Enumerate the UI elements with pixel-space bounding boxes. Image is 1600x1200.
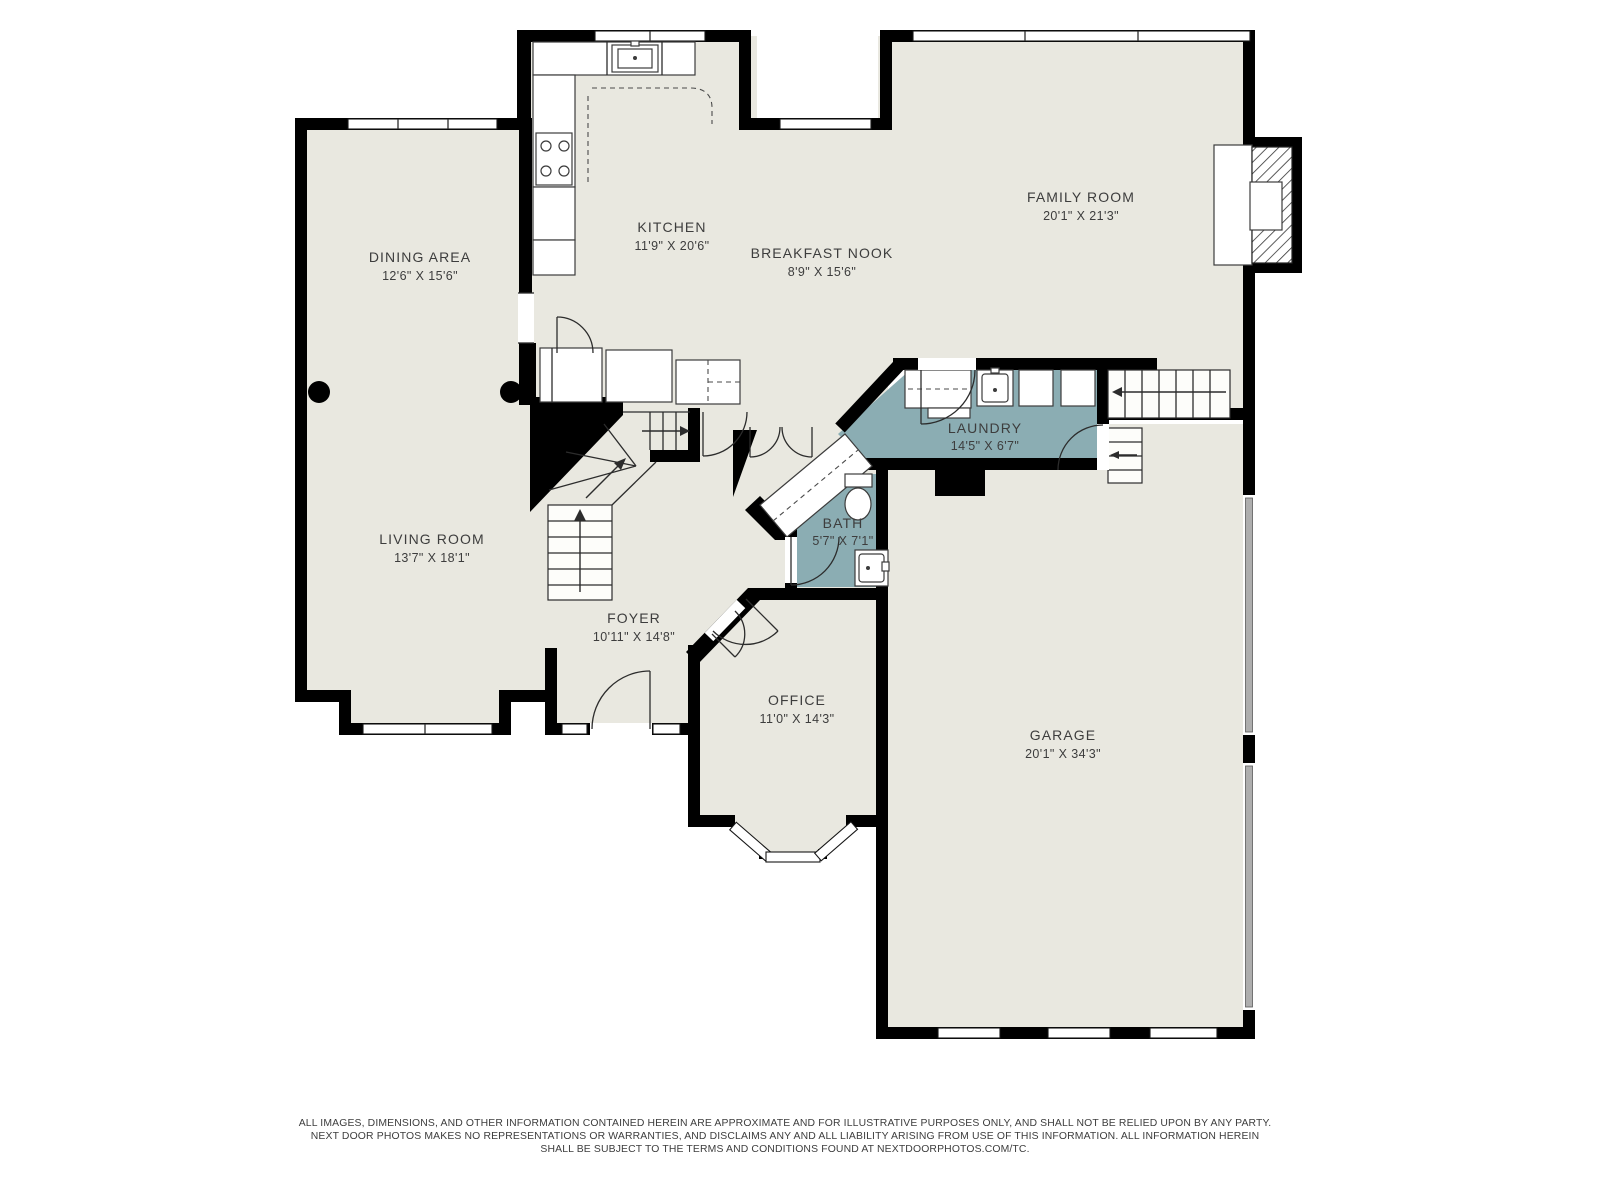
wall-segment xyxy=(739,30,751,130)
window-office-bay-center xyxy=(766,852,820,862)
window-dining xyxy=(348,119,497,129)
bath-faucet-icon xyxy=(882,562,889,571)
room-dims-family: 20'1" X 21'3" xyxy=(1043,209,1119,223)
fireplace-firebox xyxy=(1250,182,1282,230)
wall-segment xyxy=(517,30,531,130)
wall-segment xyxy=(1243,30,1255,147)
room-label-family: FAMILY ROOM xyxy=(1027,189,1135,205)
garage-door-1 xyxy=(1246,498,1253,732)
laundry-drain-icon xyxy=(993,388,997,392)
garage-door-2 xyxy=(1246,766,1253,1007)
room-dims-breakfast: 8'9" X 15'6" xyxy=(788,265,857,279)
door-opening xyxy=(1097,424,1109,470)
wall-segment xyxy=(880,30,892,130)
toilet-tank xyxy=(845,474,872,487)
wall-fireplace-right xyxy=(1292,137,1302,273)
room-label-garage: GARAGE xyxy=(1030,727,1097,743)
wall-fireplace-bottom xyxy=(1252,263,1302,273)
room-dims-bath: 5'7" X 7'1" xyxy=(812,534,873,548)
window-garage-1 xyxy=(938,1028,1000,1038)
room-dims-kitchen: 11'9" X 20'6" xyxy=(635,239,710,253)
room-label-kitchen: KITCHEN xyxy=(637,219,706,235)
floor-dining-living xyxy=(301,124,531,696)
column-marker-icon xyxy=(308,381,330,403)
disclaimer: ALL IMAGES, DIMENSIONS, AND OTHER INFORM… xyxy=(299,1118,1272,1155)
room-dims-office: 11'0" X 14'3" xyxy=(760,712,835,726)
door-opening xyxy=(918,358,976,370)
window-garage-2 xyxy=(1048,1028,1110,1038)
room-dims-garage: 20'1" X 34'3" xyxy=(1025,747,1101,761)
column-marker-icon xyxy=(500,381,522,403)
laundry-faucet-icon xyxy=(991,368,999,373)
dryer-icon xyxy=(1061,370,1095,406)
kitchen-counter-top xyxy=(533,42,695,75)
fireplace-hearth xyxy=(1214,145,1252,265)
kitchen-faucet-icon xyxy=(631,41,639,46)
room-label-breakfast: BREAKFAST NOOK xyxy=(751,245,894,261)
window-garage-3 xyxy=(1150,1028,1217,1038)
disclaimer-line-2: NEXT DOOR PHOTOS MAKES NO REPRESENTATION… xyxy=(311,1131,1259,1142)
window-breakfast-nook xyxy=(780,119,871,129)
wall-segment xyxy=(935,470,985,496)
disclaimer-line-3: SHALL BE SUBJECT TO THE TERMS AND CONDIT… xyxy=(540,1144,1029,1155)
washer-icon xyxy=(1019,370,1053,406)
wall-segment xyxy=(1243,263,1255,410)
room-label-office: OFFICE xyxy=(768,692,826,708)
wall-segment xyxy=(519,130,532,293)
pantry-closet xyxy=(540,348,602,402)
kitchen-cabinet xyxy=(533,187,575,240)
room-label-foyer: FOYER xyxy=(607,610,661,626)
floor-plan-page: DINING AREA 12'6" X 15'6" KITCHEN 11'9" … xyxy=(0,0,1600,1200)
wall-segment xyxy=(545,648,557,735)
kitchen-drain-icon xyxy=(633,56,637,60)
window-living-bay xyxy=(363,724,492,734)
floor-plan-drawing: DINING AREA 12'6" X 15'6" KITCHEN 11'9" … xyxy=(0,0,1600,1200)
room-dims-living: 13'7" X 18'1" xyxy=(394,551,470,565)
wall-segment xyxy=(688,815,735,827)
wall-segment xyxy=(748,588,888,600)
room-label-bath: BATH xyxy=(823,515,864,531)
disclaimer-line-1: ALL IMAGES, DIMENSIONS, AND OTHER INFORM… xyxy=(299,1118,1272,1129)
wall-segment xyxy=(848,458,1109,470)
opening-dining-kitchen xyxy=(518,293,534,343)
room-label-living: LIVING ROOM xyxy=(379,531,484,547)
hall-closet xyxy=(606,350,672,402)
window-foyer-left xyxy=(562,724,587,734)
window-family-room xyxy=(913,31,1250,41)
wall-segment xyxy=(688,645,700,827)
room-label-laundry: LAUNDRY xyxy=(948,420,1022,436)
wall-segment xyxy=(650,450,700,462)
room-dims-laundry: 14'5" X 6'7" xyxy=(951,439,1020,453)
wall-segment xyxy=(295,118,307,702)
wall-segment xyxy=(519,343,536,405)
room-dims-foyer: 10'11" X 14'8" xyxy=(593,630,675,644)
window-foyer-right xyxy=(653,724,680,734)
fireplace xyxy=(1214,145,1292,265)
room-label-dining: DINING AREA xyxy=(369,249,471,265)
stair-run-upper xyxy=(1108,370,1230,418)
bath-drain-icon xyxy=(866,566,870,570)
kitchen-refrigerator xyxy=(533,240,575,275)
room-dims-dining: 12'6" X 15'6" xyxy=(382,269,458,283)
front-door-opening xyxy=(590,723,652,735)
